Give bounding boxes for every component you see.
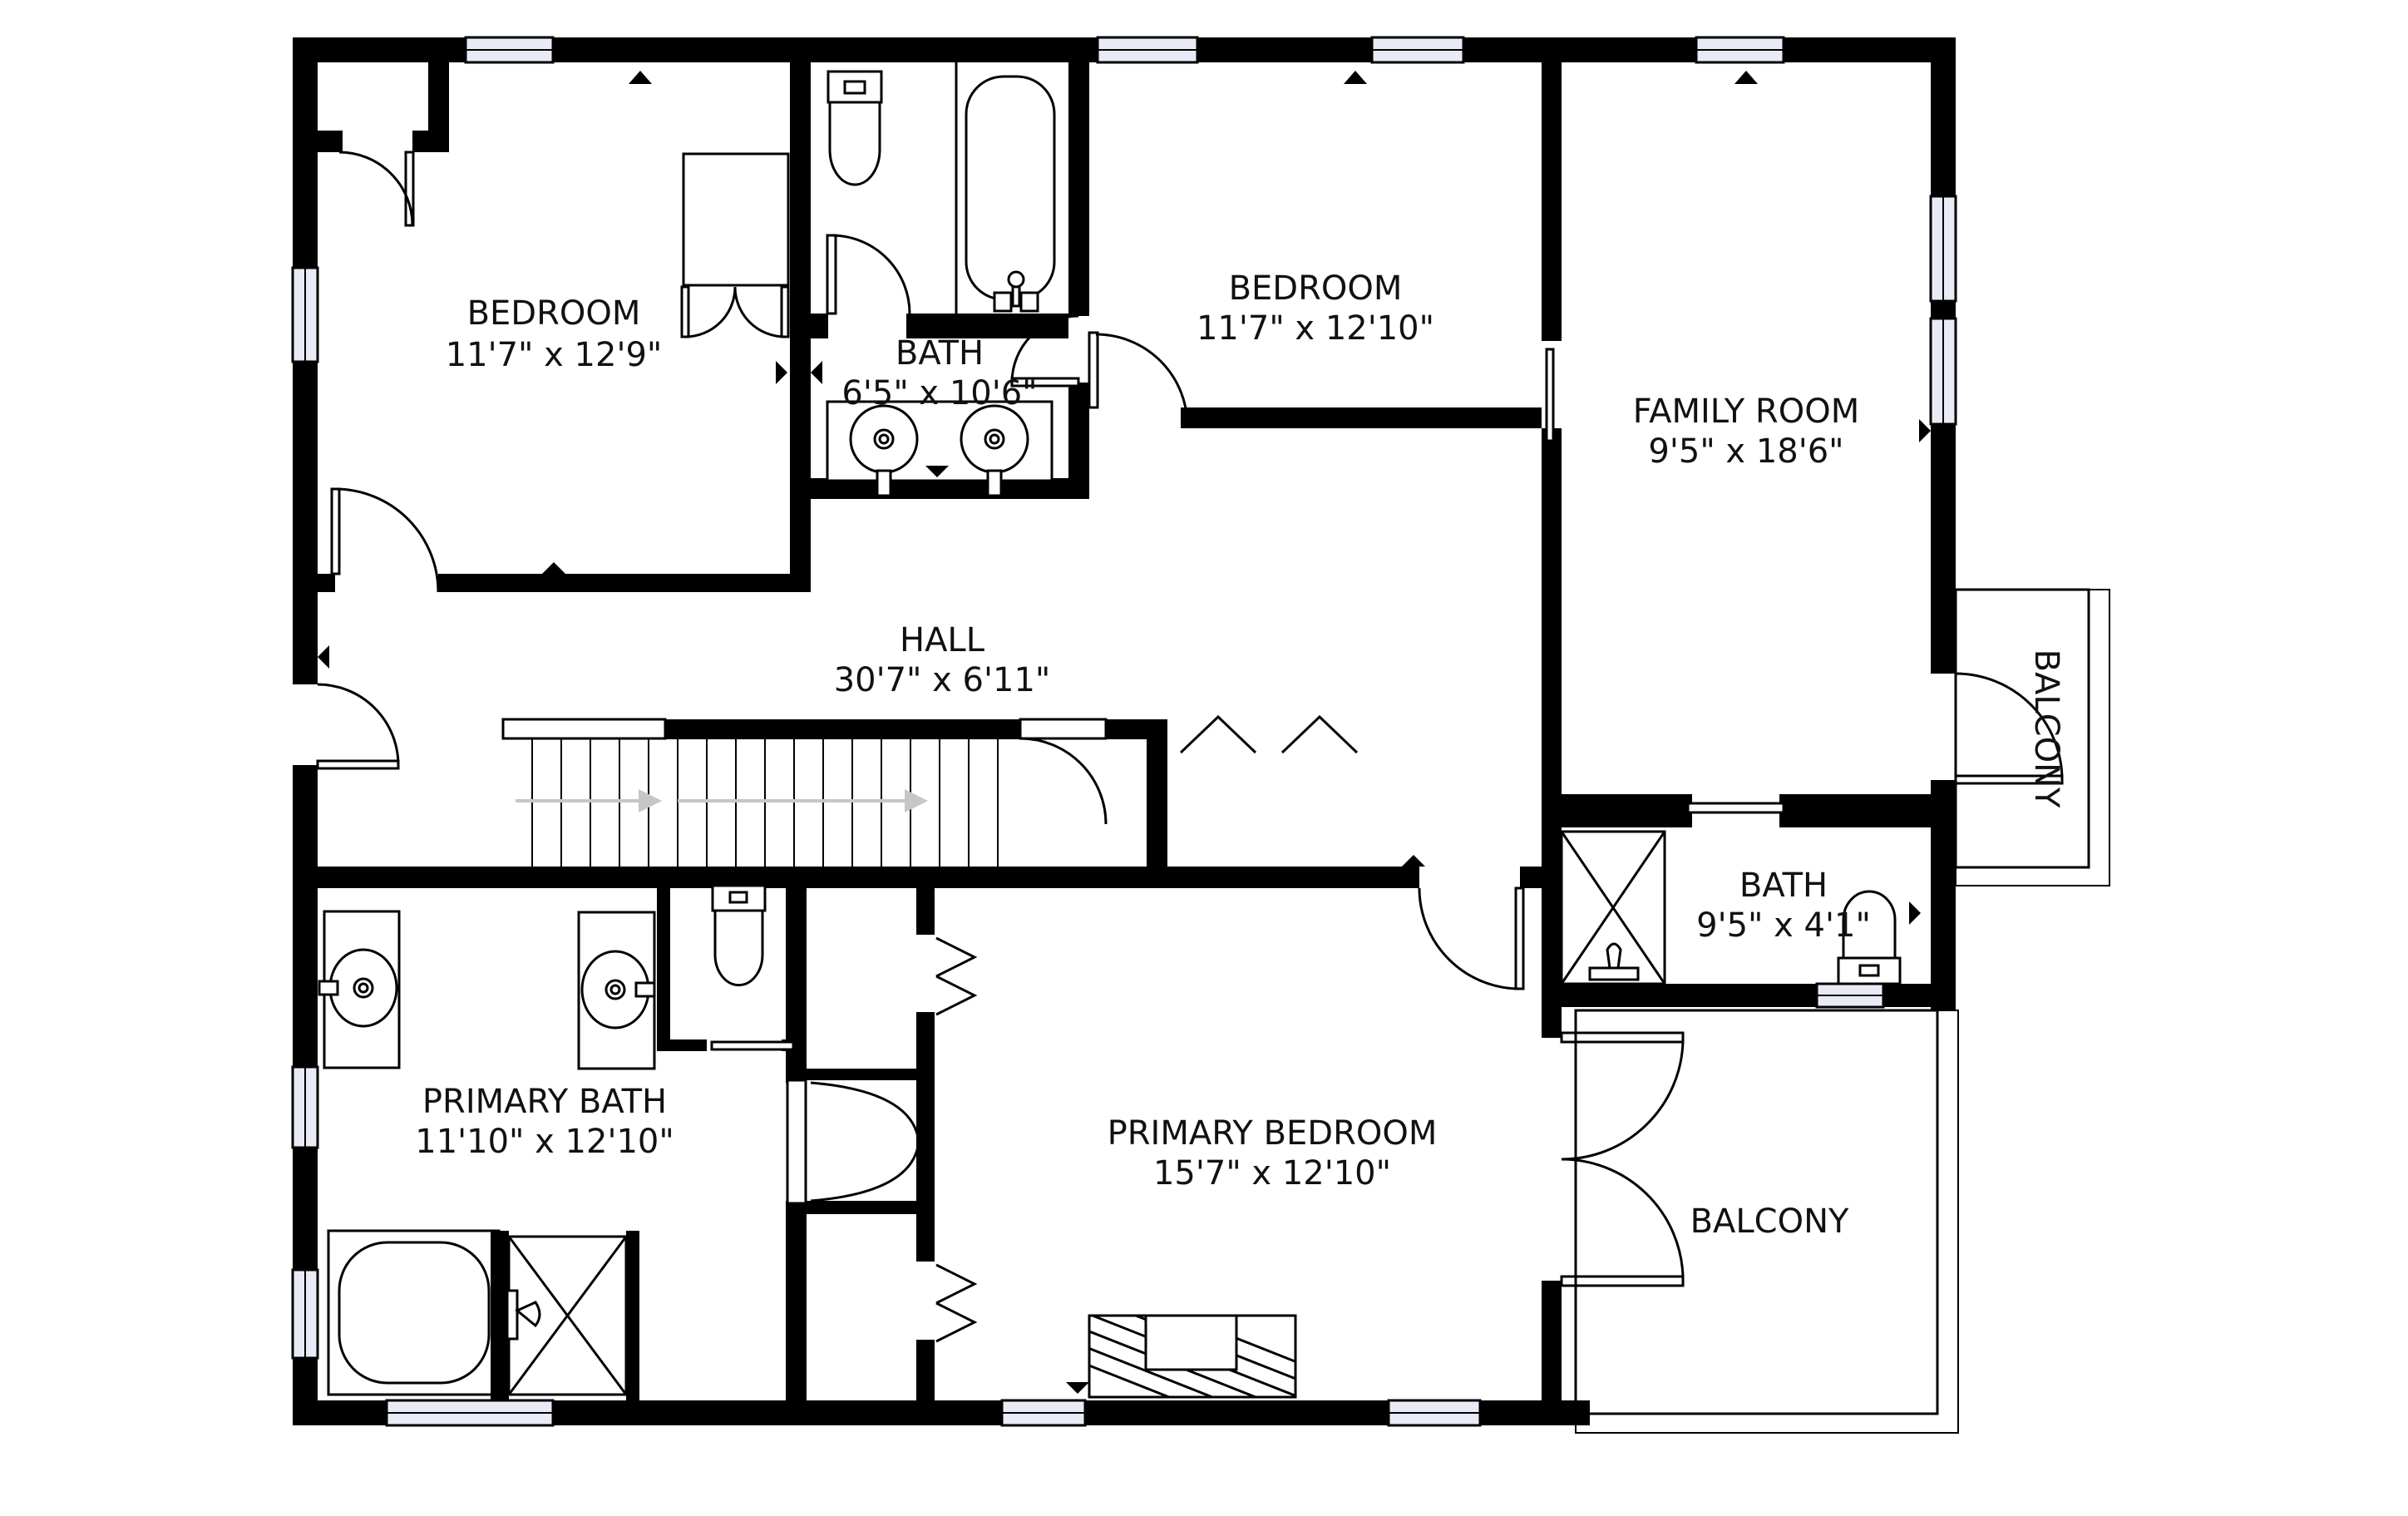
toilet-room-door — [827, 235, 910, 338]
svg-text:BATH: BATH — [896, 334, 984, 373]
bathtub-icon — [966, 77, 1054, 311]
svg-text:30'7" x 6'11": 30'7" x 6'11" — [834, 661, 1051, 699]
double-vanity — [827, 402, 1052, 496]
toilet-icon — [713, 886, 765, 985]
window — [1098, 37, 1197, 62]
label-bath-1: BATH 6'5" x 10'6" — [841, 334, 1037, 412]
vanity-sink-icon — [319, 911, 399, 1068]
window — [1002, 1400, 1085, 1425]
floor-plan: BEDROOM 11'7" x 12'9" BATH 6'5" x 10'6" … — [0, 0, 2408, 1516]
window — [293, 1270, 318, 1358]
svg-text:FAMILY ROOM: FAMILY ROOM — [1633, 393, 1859, 431]
svg-text:HALL: HALL — [900, 621, 985, 659]
window — [387, 1400, 553, 1425]
vanity-sink-icon — [579, 912, 654, 1069]
window — [1389, 1400, 1480, 1425]
primary-bedroom-entry-door — [1419, 867, 1523, 989]
shower-icon — [1562, 832, 1665, 984]
window — [1931, 319, 1956, 424]
stair-direction-arrows — [516, 789, 928, 812]
bath1-fixtures — [827, 62, 1054, 496]
svg-text:PRIMARY BEDROOM: PRIMARY BEDROOM — [1108, 1114, 1438, 1153]
family-room-pocket-door — [1542, 341, 1562, 441]
window — [293, 1067, 318, 1148]
svg-text:15'7" x 12'10": 15'7" x 12'10" — [1153, 1154, 1391, 1193]
floor-plan-page: BEDROOM 11'7" x 12'9" BATH 6'5" x 10'6" … — [0, 0, 2408, 1516]
label-balcony-bottom: BALCONY — [1690, 1202, 1849, 1241]
svg-text:PRIMARY BATH: PRIMARY BATH — [422, 1083, 667, 1121]
label-hall: HALL 30'7" x 6'11" — [834, 621, 1051, 699]
closet-double-doors — [682, 154, 788, 337]
hall-left-door — [293, 684, 398, 768]
svg-text:11'7" x 12'10": 11'7" x 12'10" — [1197, 309, 1434, 348]
window — [466, 37, 553, 62]
svg-text:11'10" x 12'10": 11'10" x 12'10" — [415, 1123, 674, 1161]
primary-bath-double-doors — [786, 1080, 919, 1203]
french-doors-balcony — [1542, 1033, 1683, 1286]
shower-icon — [507, 1237, 626, 1395]
bedroom1-entry-door — [332, 489, 438, 592]
label-bedroom-1: BEDROOM 11'7" x 12'9" — [446, 294, 663, 374]
label-balcony-right: BALCONY — [2027, 649, 2065, 808]
label-primary-bedroom: PRIMARY BEDROOM 15'7" x 12'10" — [1108, 1114, 1438, 1193]
svg-text:11'7" x 12'9": 11'7" x 12'9" — [446, 336, 663, 374]
stair-landing-door — [1020, 719, 1106, 824]
bath2-pocket-door — [1688, 794, 1784, 827]
label-bath-2: BATH 9'5" x 4'1" — [1696, 867, 1871, 945]
svg-text:BEDROOM: BEDROOM — [467, 294, 641, 333]
window — [1817, 984, 1883, 1007]
label-family-room: FAMILY ROOM 9'5" x 18'6" — [1633, 393, 1859, 471]
wc-pocket-door — [707, 1039, 793, 1051]
soaking-tub-icon — [328, 1231, 499, 1395]
label-primary-bath: PRIMARY BATH 11'10" x 12'10" — [415, 1083, 674, 1161]
label-bedroom-2: BEDROOM 11'7" x 12'10" — [1197, 269, 1434, 348]
window — [1931, 196, 1956, 301]
window — [293, 268, 318, 362]
svg-text:BALCONY: BALCONY — [2027, 649, 2065, 808]
staircase — [503, 717, 1357, 867]
fireplace-icon — [963, 1316, 1385, 1397]
svg-text:9'5" x 4'1": 9'5" x 4'1" — [1696, 906, 1871, 945]
closet-door-swing — [339, 131, 413, 225]
railing-chevron-icon — [1181, 717, 1357, 753]
svg-text:BALCONY: BALCONY — [1690, 1202, 1849, 1241]
svg-text:BATH: BATH — [1739, 867, 1828, 905]
bedroom2-entry-door — [1089, 333, 1187, 428]
window — [1696, 37, 1784, 62]
toilet-icon — [828, 72, 881, 185]
svg-text:6'5" x 10'6": 6'5" x 10'6" — [841, 374, 1037, 412]
window — [1372, 37, 1463, 62]
svg-text:BEDROOM: BEDROOM — [1229, 269, 1403, 308]
svg-text:9'5" x 18'6": 9'5" x 18'6" — [1648, 432, 1843, 471]
